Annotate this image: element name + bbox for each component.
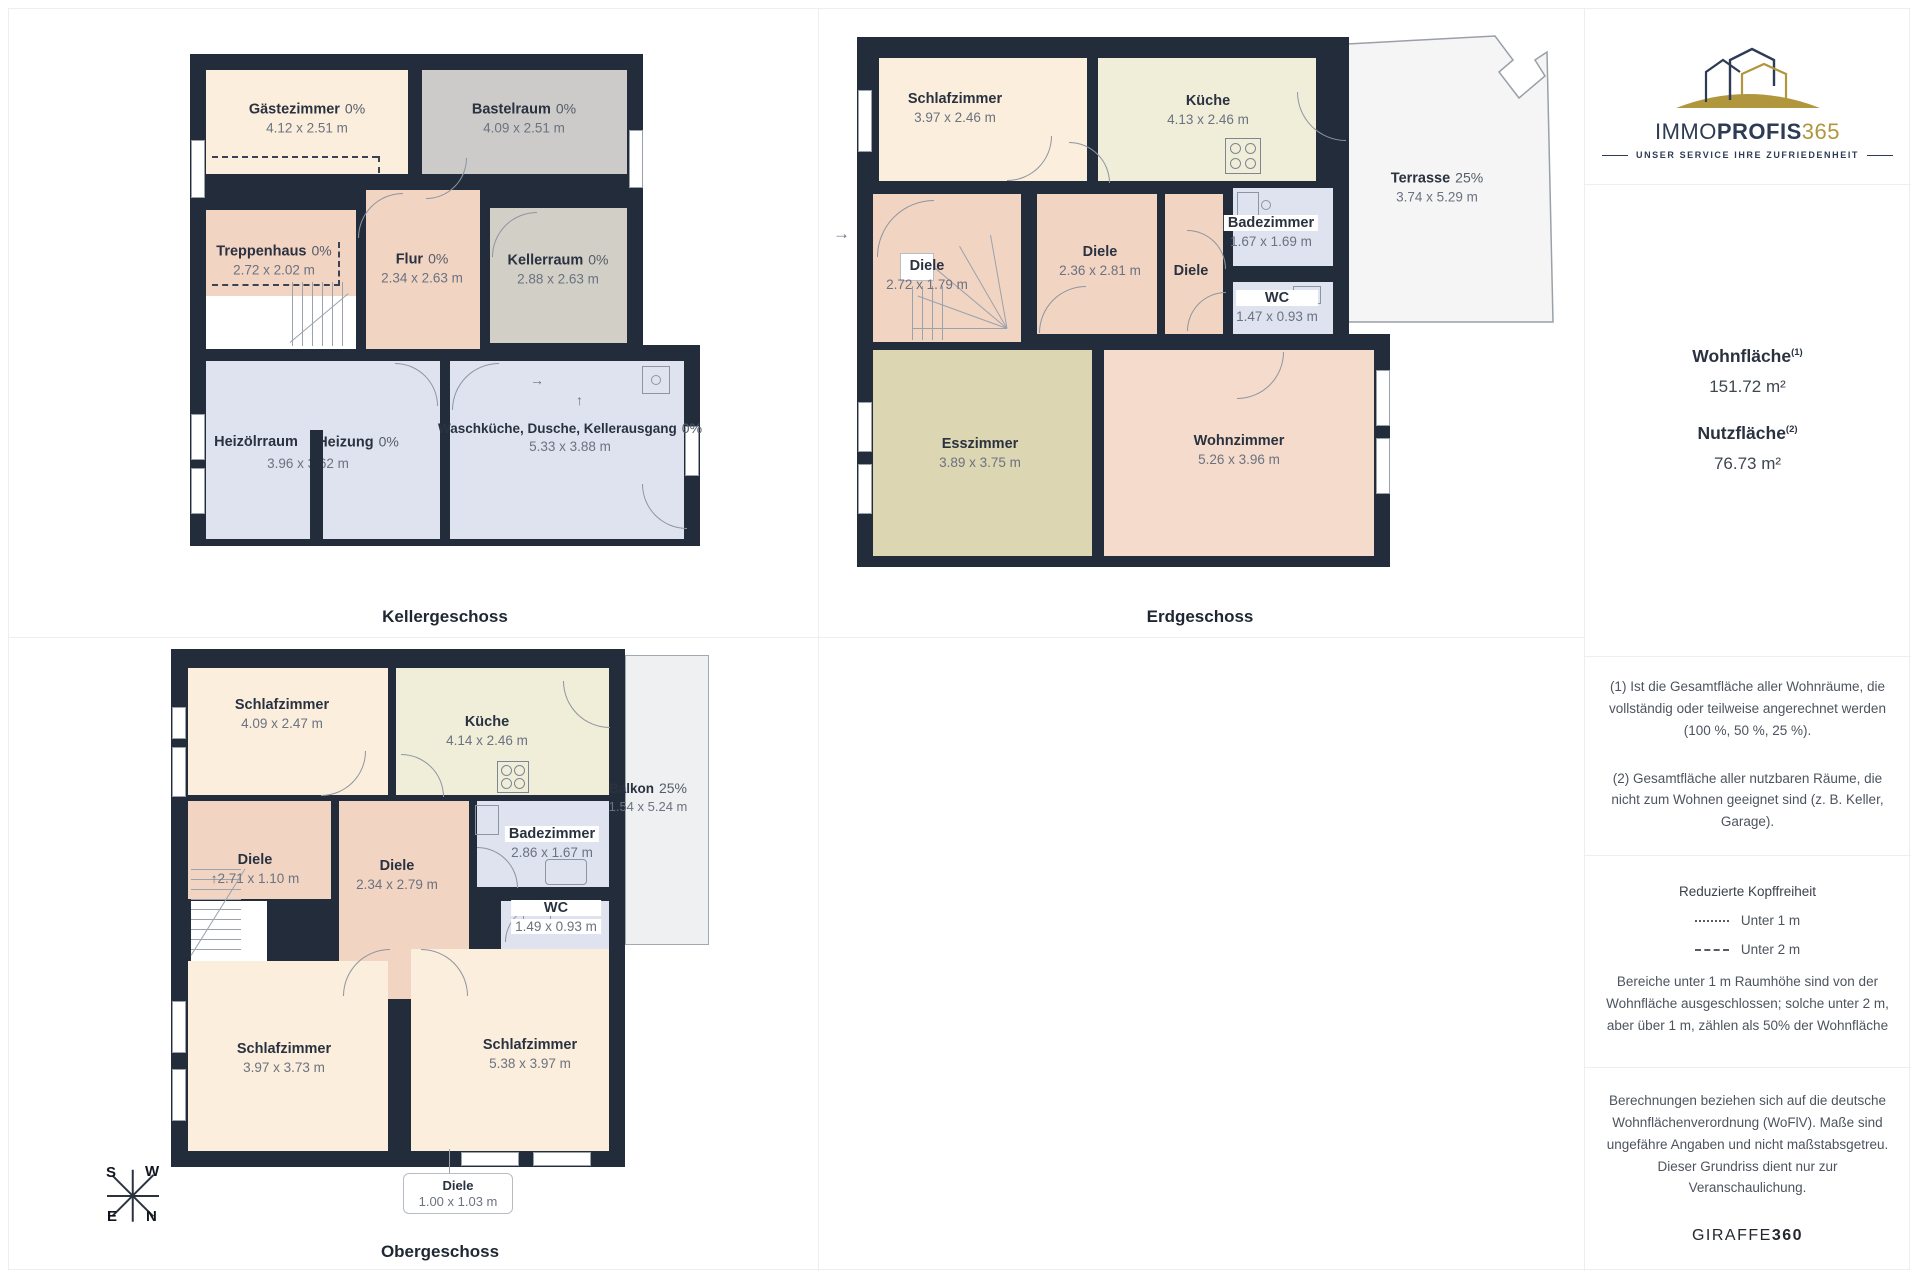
- headroom-body: Bereiche unter 1 m Raumhöhe sind von der…: [1604, 971, 1891, 1037]
- room-label-schlafzimmer-eg: Schlafzimmer 3.97 x 2.46 m: [908, 91, 1002, 125]
- window: [191, 414, 205, 460]
- window: [172, 1069, 186, 1121]
- floor-plan-kellergeschoss: → ↑ Gästezimmer0% 4.12 x 2.51 m Bastelra…: [190, 54, 700, 546]
- sidebar-section-divider-2: [1584, 656, 1911, 657]
- window: [461, 1152, 519, 1166]
- legend-under-2m: Unter 2 m: [1604, 942, 1891, 957]
- room-label-kellerraum: Kellerraum0% 2.88 x 2.63 m: [508, 252, 609, 287]
- room-label-badezimmer-eg: Badezimmer 1.67 x 1.69 m: [1224, 215, 1318, 249]
- floor-plan-erdgeschoss: → Schlafzimmer 3.97 x 2.46 m Küche 4.13 …: [857, 34, 1557, 574]
- room-label-treppenhaus: Treppenhaus0% 2.72 x 2.02 m: [216, 243, 331, 278]
- window: [191, 140, 205, 198]
- window: [172, 1001, 186, 1053]
- room-label-wc-eg: WC 1.47 x 0.93 m: [1236, 290, 1318, 324]
- window: [1376, 370, 1390, 426]
- brand-tagline: UNSER SERVICE IHRE ZUFRIEDENHEIT: [1584, 150, 1911, 160]
- window: [533, 1152, 591, 1166]
- room-label-schlafzimmer2-og: Schlafzimmer 3.97 x 3.73 m: [237, 1041, 331, 1075]
- legend-under-1m: Unter 1 m: [1604, 913, 1891, 928]
- faucet-icon: [1261, 200, 1271, 210]
- entrance-arrow-icon: →: [833, 224, 850, 244]
- window: [1376, 438, 1390, 494]
- sidebar-divider: [1584, 8, 1585, 1271]
- room-label-heizoelraum: Heizölrraum: [214, 434, 298, 450]
- brand-wordmark: IMMOPROFIS365: [1584, 119, 1911, 145]
- panel-divider-vertical: [818, 8, 819, 1271]
- window: [858, 464, 872, 514]
- headroom-legend: Reduzierte Kopffreiheit Unter 1 m Unter …: [1604, 884, 1891, 1037]
- room-label-bastelraum: Bastelraum0% 4.09 x 2.51 m: [472, 101, 576, 136]
- nutzflaeche-label: Nutzfläche(2): [1584, 423, 1911, 444]
- window: [172, 707, 186, 739]
- fixture-arrow-icon: →: [530, 372, 544, 388]
- room-label-kueche-og: Küche 4.14 x 2.46 m: [446, 714, 528, 748]
- caption-kellergeschoss: Kellergeschoss: [382, 607, 508, 627]
- footnotes-block: (1) Ist die Gesamtfläche aller Wohnräume…: [1604, 676, 1891, 833]
- footnote-2: (2) Gesamtfläche aller nutzbaren Räume, …: [1604, 768, 1891, 834]
- stairs-exit-arrow-icon: ↑: [576, 392, 583, 408]
- dotted-line-icon: [1695, 920, 1729, 922]
- shower-drain-icon: [651, 375, 661, 385]
- wohnflaeche-value: 151.72 m²: [1584, 377, 1911, 397]
- floor-plan-obergeschoss: Schlafzimmer 4.09 x 2.47 m Küche 4.14 x …: [171, 649, 716, 1261]
- room-label-gaestezimmer: Gästezimmer0% 4.12 x 2.51 m: [249, 101, 365, 136]
- room-label-schlafzimmer1-og: Schlafzimmer 4.09 x 2.47 m: [235, 697, 329, 731]
- room-label-wohnzimmer: Wohnzimmer 5.26 x 3.96 m: [1194, 433, 1285, 467]
- immoprofis-logo-icon: [1668, 46, 1828, 114]
- window: [172, 747, 186, 797]
- caption-obergeschoss: Obergeschoss: [381, 1242, 499, 1262]
- sidebar-section-divider-4: [1584, 1067, 1911, 1068]
- compass-east: E: [107, 1208, 117, 1225]
- callout-leader-line: [449, 1149, 450, 1175]
- room-label-diele-center-eg: Diele 2.36 x 2.81 m: [1059, 244, 1141, 278]
- room-label-balkon: Balkon25% 1.54 x 5.24 m: [609, 780, 688, 814]
- partial-wall: [310, 430, 323, 539]
- panel-divider-horizontal: [8, 637, 1584, 638]
- washbasin-icon: [475, 805, 499, 835]
- footnote-1: (1) Ist die Gesamtfläche aller Wohnräume…: [1604, 676, 1891, 742]
- room-label-diele-center-og: Diele 2.34 x 2.79 m: [356, 858, 438, 892]
- floorplan-page: → ↑ Gästezimmer0% 4.12 x 2.51 m Bastelra…: [0, 0, 1920, 1280]
- room-label-diele-corridor-eg: Diele: [1174, 263, 1209, 279]
- room-label-waschkueche: Waschküche, Dusche, Kellerausgang0% 5.33…: [438, 420, 702, 454]
- area-summary: Wohnfläche(1) 151.72 m² Nutzfläche(2) 76…: [1584, 346, 1911, 474]
- tagline-dash: [1602, 155, 1628, 156]
- room-label-schlafzimmer3-og: Schlafzimmer 5.38 x 3.97 m: [483, 1037, 577, 1071]
- window: [629, 130, 643, 188]
- headroom-title: Reduzierte Kopffreiheit: [1604, 884, 1891, 899]
- disclaimer-body: Berechnungen beziehen sich auf die deuts…: [1604, 1090, 1891, 1199]
- room-label-esszimmer: Esszimmer 3.89 x 3.75 m: [939, 436, 1021, 470]
- window: [858, 90, 872, 152]
- room-label-diele-left-og: Diele ↑2.71 x 1.10 m: [211, 852, 300, 886]
- room-label-kueche-eg: Küche 4.13 x 2.46 m: [1167, 93, 1249, 127]
- window: [191, 468, 205, 514]
- caption-erdgeschoss: Erdgeschoss: [1147, 607, 1254, 627]
- room-label-flur: Flur0% 2.34 x 2.63 m: [381, 251, 463, 286]
- disclaimer-block: Berechnungen beziehen sich auf die deuts…: [1604, 1090, 1891, 1245]
- diele-callout: Diele 1.00 x 1.03 m: [403, 1173, 513, 1214]
- stove-icon: [1225, 138, 1261, 174]
- window: [858, 402, 872, 452]
- compass-north: N: [146, 1208, 157, 1225]
- room-dims-heizoelraum: 3.96 x 3.62 m: [267, 453, 349, 471]
- room-label-wc-og: WC 1.49 x 0.93 m: [511, 900, 601, 934]
- compass-west: W: [145, 1163, 159, 1180]
- tagline-dash: [1867, 155, 1893, 156]
- stove-icon: [497, 761, 529, 793]
- wohnflaeche-label: Wohnfläche(1): [1584, 346, 1911, 367]
- stairs-up-arrow-icon: ↑: [211, 871, 218, 886]
- giraffe360-wordmark: GIRAFFE360: [1604, 1227, 1891, 1245]
- room-label-diele-entry-eg: Diele 2.72 x 1.79 m: [886, 258, 968, 292]
- sidebar-section-divider-1: [1584, 184, 1911, 185]
- sidebar-section-divider-3: [1584, 855, 1911, 856]
- room-label-terrasse: Terrasse25% 3.74 x 5.29 m: [1391, 170, 1483, 205]
- room-label-badezimmer-og: Badezimmer 2.86 x 1.67 m: [505, 826, 599, 860]
- compass-south: S: [106, 1164, 116, 1181]
- room-label-heizung: Heizung0%: [317, 434, 399, 451]
- logo-block: IMMOPROFIS365 UNSER SERVICE IHRE ZUFRIED…: [1584, 46, 1911, 160]
- nutzflaeche-value: 76.73 m²: [1584, 454, 1911, 474]
- dashed-line-icon: [1695, 949, 1729, 951]
- bathtub-icon: [545, 859, 587, 885]
